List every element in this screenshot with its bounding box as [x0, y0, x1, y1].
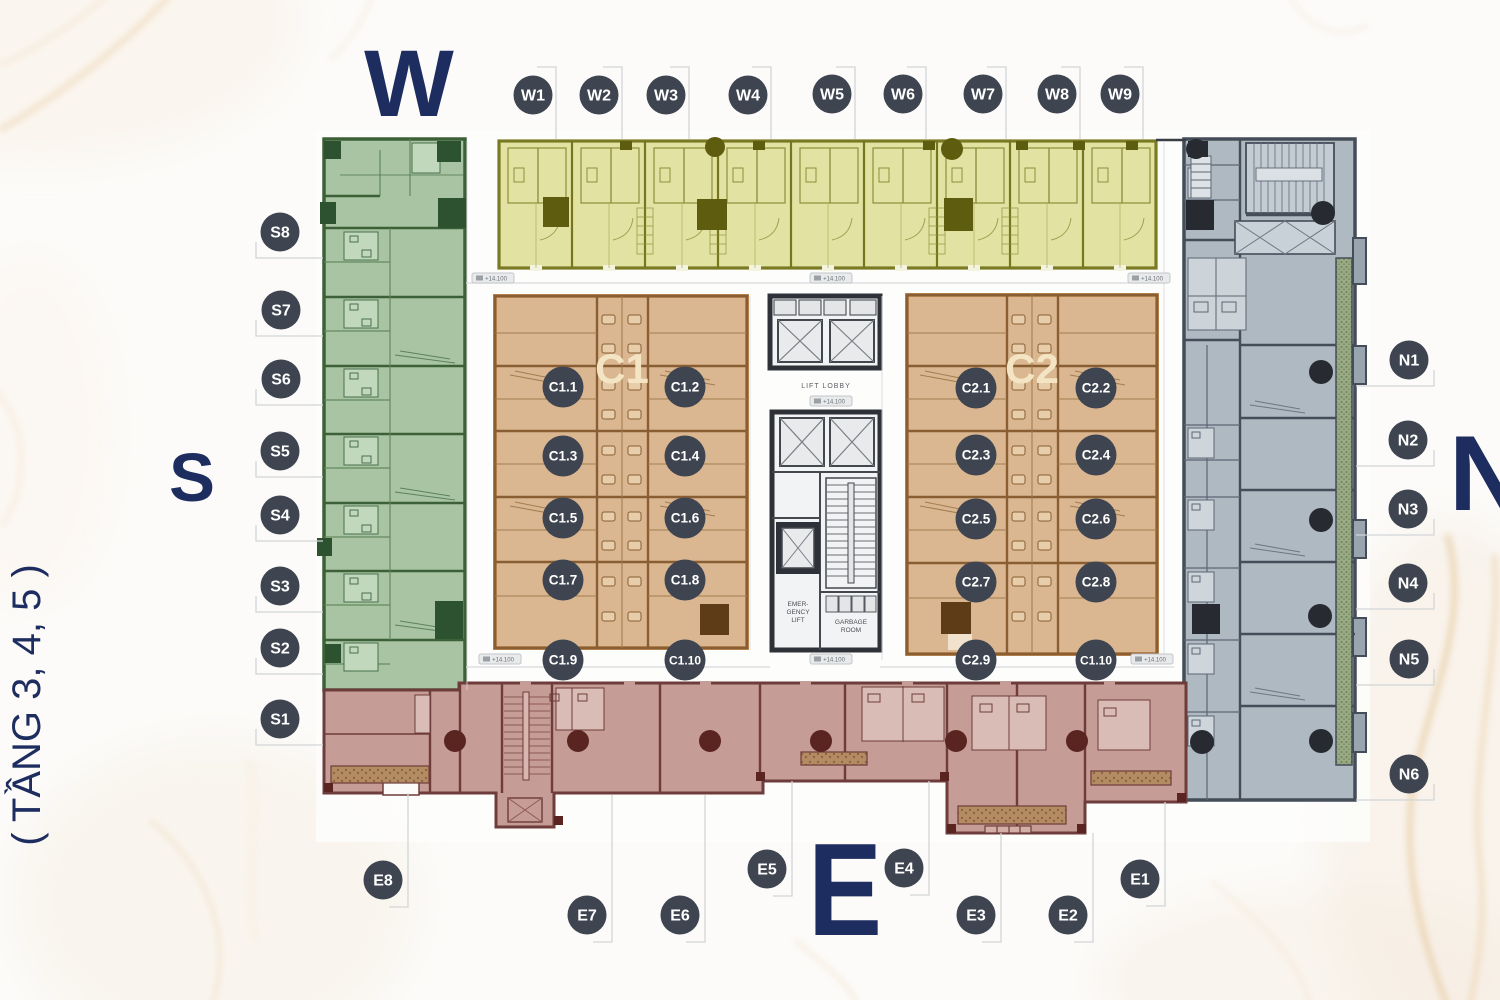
svg-text:S8: S8: [270, 225, 290, 242]
svg-text:S1: S1: [270, 712, 290, 729]
svg-text:W3: W3: [654, 88, 678, 105]
svg-text:C2.5: C2.5: [962, 512, 991, 527]
svg-text:W2: W2: [587, 88, 611, 105]
svg-text:+14.100: +14.100: [1141, 277, 1164, 283]
svg-text:W7: W7: [971, 87, 995, 104]
svg-text:C2.7: C2.7: [962, 575, 991, 590]
svg-text:S: S: [169, 439, 215, 516]
svg-text:W5: W5: [820, 87, 844, 104]
svg-text:C1.9: C1.9: [549, 653, 578, 668]
svg-text:LIFT: LIFT: [791, 617, 804, 624]
svg-text:C2.1: C2.1: [962, 381, 991, 396]
svg-text:W9: W9: [1108, 87, 1132, 104]
svg-text:S5: S5: [270, 444, 290, 461]
svg-text:GARBAGE: GARBAGE: [835, 619, 868, 626]
svg-text:+14.100: +14.100: [1144, 658, 1167, 664]
svg-text:C2.3: C2.3: [962, 448, 991, 463]
svg-text:E1: E1: [1130, 872, 1150, 889]
svg-text:N: N: [1449, 413, 1500, 533]
svg-text:W6: W6: [891, 87, 915, 104]
svg-text:N2: N2: [1398, 433, 1419, 450]
svg-text:C2.2: C2.2: [1082, 381, 1111, 396]
svg-text:E4: E4: [894, 861, 914, 878]
svg-text:W1: W1: [521, 88, 545, 105]
svg-text:W: W: [364, 31, 454, 137]
svg-text:E7: E7: [577, 908, 597, 925]
svg-text:C1: C1: [595, 345, 649, 392]
svg-text:C1.8: C1.8: [671, 573, 700, 588]
svg-text:C1.2: C1.2: [671, 380, 700, 395]
svg-text:+14.100: +14.100: [823, 400, 846, 406]
svg-text:E2: E2: [1058, 908, 1078, 925]
svg-text:S3: S3: [270, 579, 290, 596]
svg-text:C2.6: C2.6: [1082, 512, 1111, 527]
svg-text:( TẦNG 3, 4, 5 ): ( TẦNG 3, 4, 5 ): [3, 564, 49, 846]
svg-text:C2: C2: [1005, 345, 1059, 392]
svg-text:N3: N3: [1398, 502, 1419, 519]
svg-text:+14.100: +14.100: [823, 277, 846, 283]
svg-text:E: E: [808, 816, 882, 963]
svg-text:E3: E3: [966, 908, 986, 925]
svg-text:N6: N6: [1399, 767, 1420, 784]
svg-text:C2.9: C2.9: [962, 653, 991, 668]
svg-text:EMER-: EMER-: [788, 601, 809, 608]
svg-text:GENCY: GENCY: [786, 609, 810, 616]
svg-text:C1.10: C1.10: [1080, 654, 1112, 668]
svg-text:S2: S2: [270, 641, 290, 658]
svg-text:S4: S4: [270, 508, 290, 525]
svg-text:S7: S7: [271, 303, 291, 320]
svg-text:E5: E5: [757, 862, 777, 879]
svg-text:W8: W8: [1045, 87, 1069, 104]
svg-text:C1.1: C1.1: [549, 380, 578, 395]
svg-text:+14.100: +14.100: [492, 658, 515, 664]
svg-text:+14.100: +14.100: [823, 658, 846, 664]
svg-text:C1.6: C1.6: [671, 511, 700, 526]
svg-text:W4: W4: [736, 88, 760, 105]
svg-text:+14.100: +14.100: [485, 277, 508, 283]
svg-text:N5: N5: [1399, 652, 1420, 669]
svg-text:N1: N1: [1399, 353, 1420, 370]
svg-text:S6: S6: [271, 372, 291, 389]
svg-text:C2.4: C2.4: [1082, 448, 1111, 463]
svg-text:C1.10: C1.10: [669, 654, 701, 668]
svg-text:N4: N4: [1398, 576, 1419, 593]
svg-text:E6: E6: [670, 908, 690, 925]
svg-text:C1.3: C1.3: [549, 449, 578, 464]
svg-text:C1.7: C1.7: [549, 573, 578, 588]
svg-text:LIFT LOBBY: LIFT LOBBY: [801, 383, 851, 390]
svg-text:C2.8: C2.8: [1082, 575, 1111, 590]
svg-text:C1.5: C1.5: [549, 511, 578, 526]
svg-text:ROOM: ROOM: [841, 627, 861, 634]
svg-text:E8: E8: [373, 873, 393, 890]
svg-text:C1.4: C1.4: [671, 449, 700, 464]
